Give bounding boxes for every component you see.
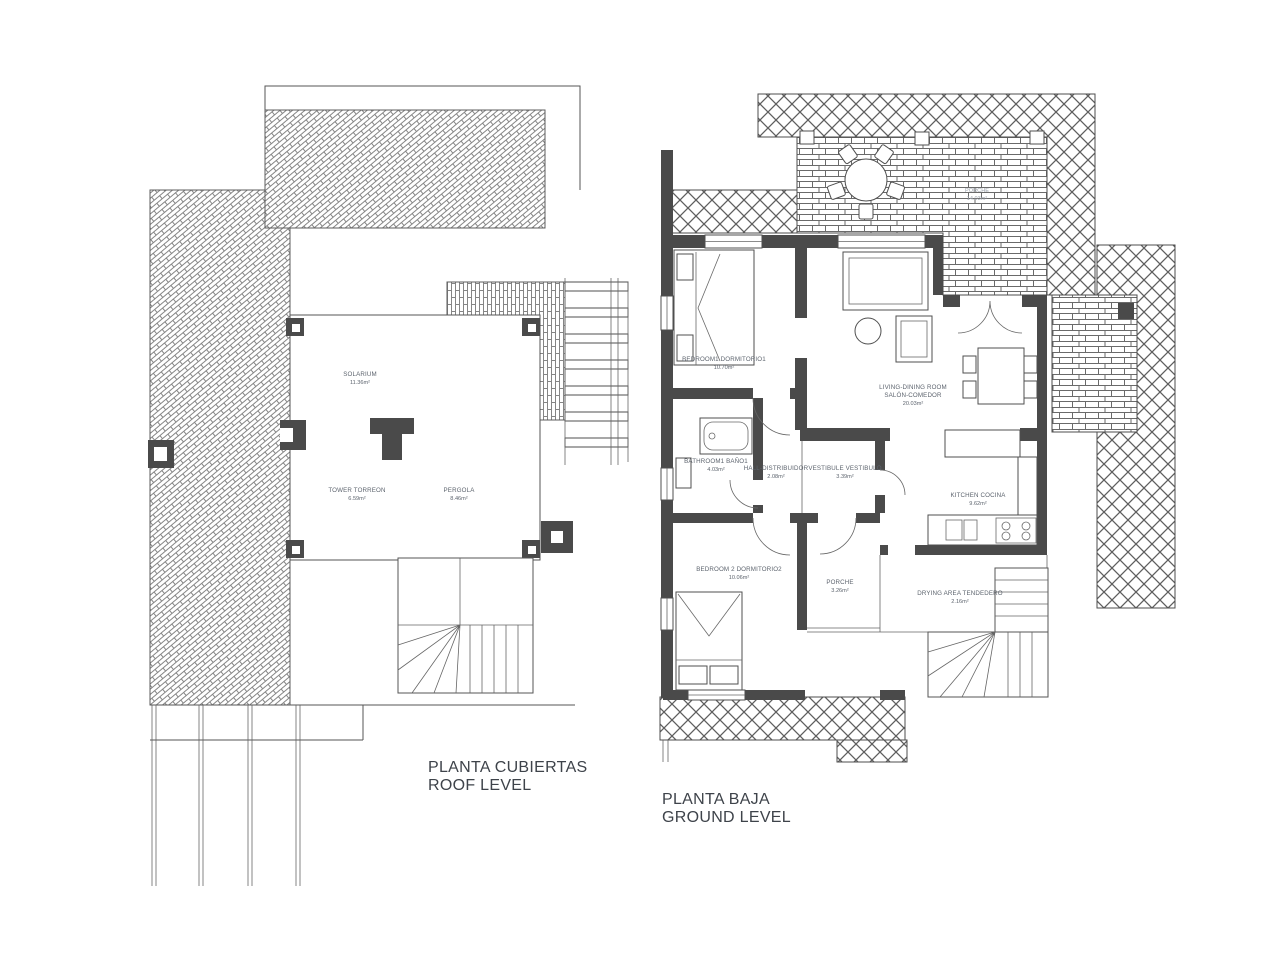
ground-plan: PORCHE 14.03m² BEDROOM1 DORMITORIO1 10.7… — [660, 94, 1175, 826]
ground-stairs — [928, 568, 1048, 697]
room-area-drying: 2.16m² — [951, 599, 969, 605]
bed2 — [676, 592, 742, 690]
roof-lower-structure — [150, 705, 575, 886]
roof-hatch-top — [265, 110, 545, 228]
roof-title-line2: ROOF LEVEL — [428, 777, 531, 794]
dining-set — [963, 348, 1037, 404]
room-label-living-es: SALÓN-COMEDOR — [884, 392, 942, 399]
roof-plan: SOLARIUM 11.36m² TOWER TORREON 6.59m² PE… — [148, 86, 628, 886]
room-area-living: 20.03m² — [903, 401, 924, 407]
crosshatch-bottom — [660, 697, 905, 740]
french-door-arcs — [958, 301, 1022, 333]
crosshatch-left — [672, 190, 797, 233]
room-area-hall: 2.08m² — [767, 474, 785, 480]
room-label-vestibule: VESTIBULE VESTIBULO — [808, 465, 881, 472]
room-label-hall: HALL-DISTRIBUIDOR — [744, 465, 809, 472]
crosshatch-bottom-step — [837, 740, 907, 762]
room-label-tower: TOWER TORREON — [328, 487, 385, 494]
room-label-bedroom2: BEDROOM 2 DORMITORIO2 — [696, 566, 782, 573]
room-area-bathroom1: 4.03m² — [707, 467, 725, 473]
bedroom2-door-arc — [753, 518, 790, 555]
ground-title-line2: GROUND LEVEL — [662, 809, 791, 826]
room-area-terrace: 14.03m² — [967, 196, 988, 202]
roof-stairs — [398, 558, 533, 693]
floorplan-svg: SOLARIUM 11.36m² TOWER TORREON 6.59m² PE… — [0, 0, 1280, 960]
room-label-living: LIVING-DINING ROOM — [879, 384, 947, 391]
room-area-porche: 3.26m² — [831, 588, 849, 594]
terrace-post — [1030, 131, 1044, 144]
bathroom-door-arc — [730, 480, 758, 508]
sofa-set — [843, 252, 932, 362]
roof-terrace-floor — [290, 315, 540, 560]
bathtub — [676, 418, 752, 488]
kitchen-door-arc — [880, 470, 905, 495]
room-label-porche: PORCHE — [826, 579, 853, 586]
room-area-bedroom1: 10.70m² — [714, 365, 735, 371]
floorplan-page: SOLARIUM 11.36m² TOWER TORREON 6.59m² PE… — [0, 0, 1280, 960]
room-area-vestibule: 3.39m² — [836, 474, 854, 480]
room-area-pergola: 8.46m² — [450, 496, 468, 502]
ground-title-line1: PLANTA BAJA — [662, 791, 770, 808]
coffee-table — [855, 318, 881, 344]
room-area-tower: 6.59m² — [348, 496, 366, 502]
bed1 — [674, 250, 754, 365]
room-label-solarium: SOLARIUM — [343, 371, 377, 378]
brick-pillar — [1118, 303, 1134, 319]
room-label-bathroom1: BATHROOM1 BAÑO1 — [684, 458, 748, 465]
room-label-terrace: PORCHE — [965, 188, 989, 194]
front-door-arc — [820, 518, 856, 554]
kitchen-counters — [928, 430, 1037, 545]
room-area-kitchen: 9.62m² — [969, 501, 987, 507]
room-area-solarium: 11.36m² — [350, 380, 370, 386]
roof-title-line1: PLANTA CUBIERTAS — [428, 759, 588, 776]
room-label-drying: DRYING AREA TENDEDERO — [917, 590, 1002, 597]
terrace-post — [915, 132, 929, 145]
room-label-pergola: PERGOLA — [444, 487, 476, 494]
room-area-bedroom2: 10.06m² — [729, 575, 750, 581]
room-label-bedroom1: BEDROOM1 DORMITORIO1 — [682, 356, 766, 363]
terrace-post — [800, 131, 814, 144]
room-label-kitchen: KITCHEN COCINA — [950, 492, 1006, 499]
pergola-slats — [565, 278, 628, 465]
